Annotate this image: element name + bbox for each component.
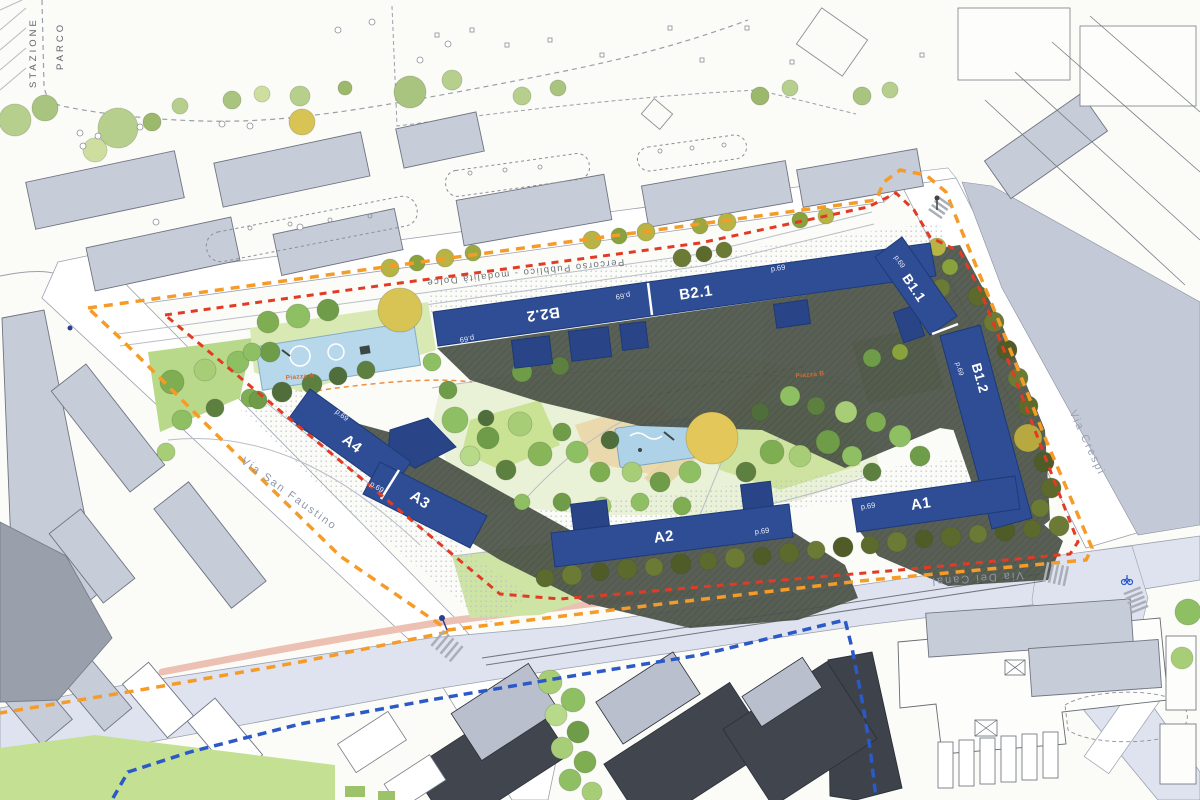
park-area-label-parco: PARCO [55, 8, 66, 70]
utility-boxes [435, 26, 969, 64]
park-area-label-stazione: STAZIONE [28, 8, 39, 88]
building-label-a2: A2 [653, 527, 675, 546]
masterplan-site-plan: PARCO STAZIONE Percorso Pubblico - modal… [0, 0, 1200, 800]
building-note-a2: p.69 [754, 526, 770, 537]
traffic-sign-icon [68, 326, 73, 331]
site-plan-drawing [0, 0, 1200, 800]
building-label-a1: A1 [910, 494, 932, 514]
